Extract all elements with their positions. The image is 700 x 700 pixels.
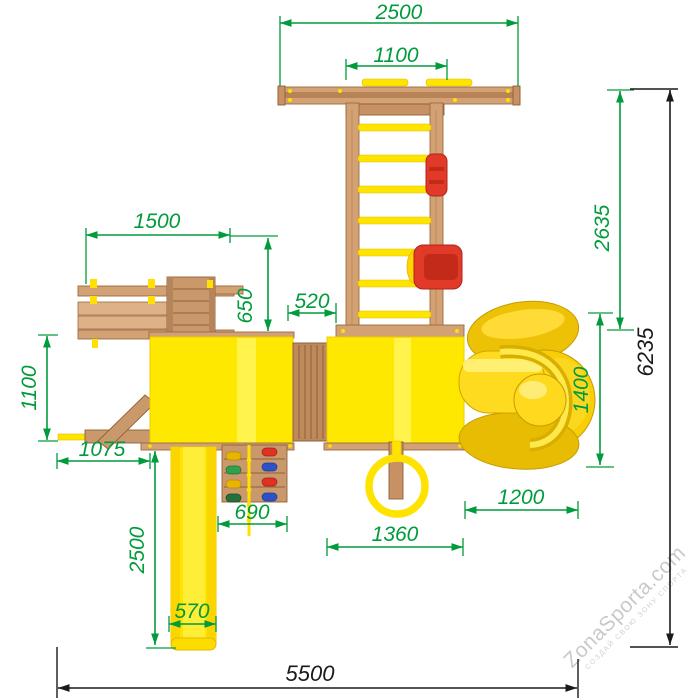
left-tower-roof <box>149 332 294 444</box>
dim-right-tower-width: 1360 <box>327 523 463 556</box>
dim-climbing-wall-width: 690 <box>218 501 287 532</box>
platform-edge-top <box>336 325 464 337</box>
swing-seat-small <box>426 154 447 196</box>
dim-label-spiral-depth: 1400 <box>570 366 593 413</box>
dim-overall-width: 5500 <box>57 647 578 698</box>
swing-seat-baby <box>407 245 462 289</box>
dim-bench-length: 1500 <box>86 210 278 284</box>
playground-top-view-drawing: 2500 1100 1500 650 520 <box>0 0 700 700</box>
dim-label-spiral-offset: 1200 <box>498 486 545 509</box>
dim-label-balance-beam: 1075 <box>79 438 126 461</box>
dim-roof-offset: 650 <box>234 238 268 331</box>
dim-spiral-offset: 1200 <box>465 486 578 519</box>
climbing-ramp-panel <box>167 277 243 336</box>
dim-label-left-arm: 1100 <box>18 365 41 410</box>
dim-label-crossbeam: 2500 <box>375 1 423 24</box>
dim-left-arm-depth: 1100 <box>18 335 58 441</box>
dim-label-overall-depth: 6235 <box>633 327 658 377</box>
dim-label-monkey-bars: 1100 <box>373 44 418 67</box>
swing-crossbeam <box>278 79 520 105</box>
dim-label-climbing-wall: 690 <box>234 501 269 524</box>
dim-label-bench: 1500 <box>134 210 181 233</box>
gymnastic-ladder <box>346 103 444 336</box>
dim-label-roof-offset: 650 <box>234 288 257 323</box>
dim-label-overall-width: 5500 <box>286 661 336 686</box>
right-tower-roof <box>327 337 464 444</box>
blueprint-canvas: ZonaSporta.com СОЗДАЙ СВОЮ ЗОНУ СПОРТА <box>0 0 700 700</box>
bridge <box>293 343 327 441</box>
dim-ladder-height: 2635 <box>591 90 634 330</box>
dim-monkey-bar-span: 1100 <box>346 44 447 80</box>
dim-label-slide-width: 570 <box>174 600 209 623</box>
dim-label-right-tower: 1360 <box>372 523 419 546</box>
dim-label-slide-run: 2500 <box>126 526 149 574</box>
dim-label-ladder-height: 2635 <box>591 204 614 252</box>
dim-label-bridge: 520 <box>294 290 329 313</box>
ring-swing <box>369 441 425 514</box>
dim-bridge-width: 520 <box>288 290 336 323</box>
dim-overall-depth: 6235 <box>630 89 678 647</box>
